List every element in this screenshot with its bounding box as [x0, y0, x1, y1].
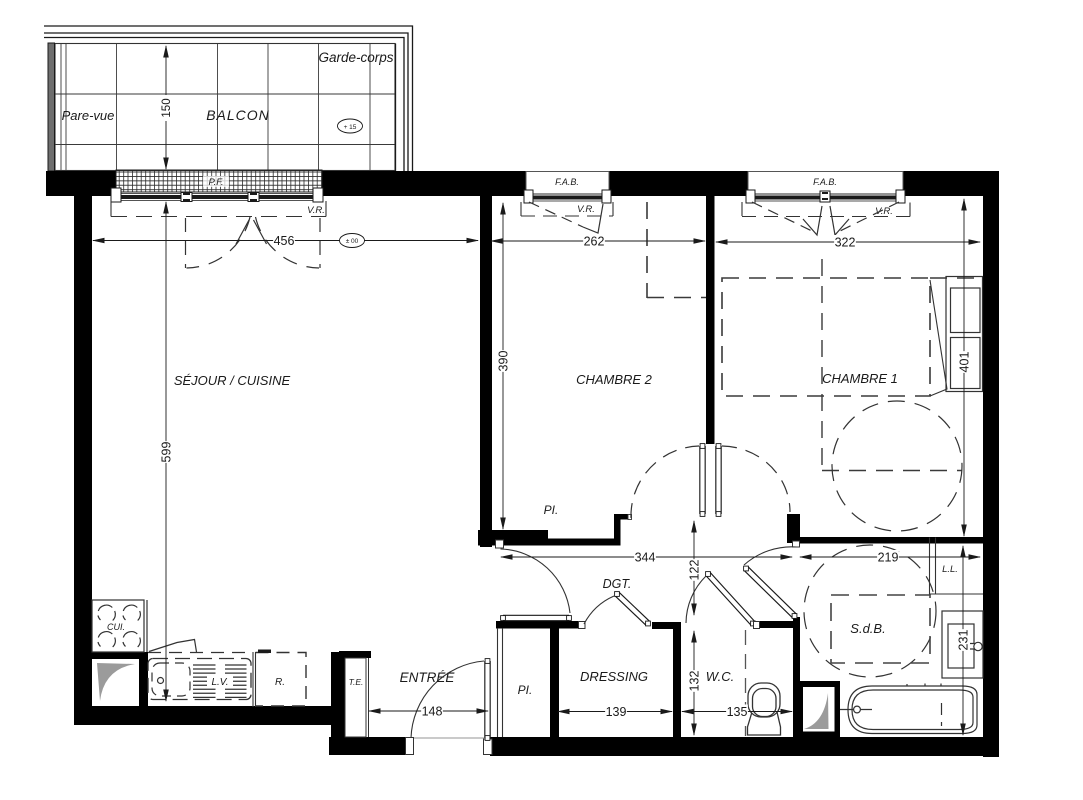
svg-text:PI.: PI. — [518, 683, 533, 697]
svg-text:122: 122 — [688, 560, 702, 581]
svg-text:262: 262 — [584, 235, 605, 249]
svg-text:344: 344 — [635, 551, 656, 565]
svg-text:PI.: PI. — [544, 503, 559, 517]
svg-text:± 00: ± 00 — [346, 238, 359, 245]
svg-text:231: 231 — [957, 630, 971, 651]
svg-text:135: 135 — [727, 705, 748, 719]
svg-text:Pare-vue: Pare-vue — [62, 108, 115, 123]
svg-text:T.E.: T.E. — [349, 677, 364, 687]
svg-text:R.: R. — [275, 677, 285, 688]
svg-text:CHAMBRE 2: CHAMBRE 2 — [576, 372, 653, 387]
svg-text:456: 456 — [274, 234, 295, 248]
svg-text:150: 150 — [161, 98, 173, 117]
svg-text:Garde-corps: Garde-corps — [318, 50, 393, 65]
svg-text:+ 15: + 15 — [344, 124, 357, 131]
svg-text:L.V.: L.V. — [211, 677, 228, 688]
svg-text:599: 599 — [160, 442, 174, 463]
svg-text:SÉJOUR / CUISINE: SÉJOUR / CUISINE — [174, 373, 291, 388]
svg-text:S.d.B.: S.d.B. — [850, 621, 885, 636]
svg-text:148: 148 — [422, 705, 443, 719]
svg-text:F.A.B.: F.A.B. — [813, 177, 837, 187]
svg-text:401: 401 — [958, 352, 972, 373]
svg-text:DRESSING: DRESSING — [580, 669, 648, 684]
svg-text:CUI.: CUI. — [107, 622, 125, 632]
svg-text:V.R.: V.R. — [307, 205, 325, 216]
svg-text:DGT.: DGT. — [603, 577, 632, 591]
svg-text:F.A.B.: F.A.B. — [555, 177, 579, 187]
svg-text:322: 322 — [835, 236, 856, 250]
svg-text:V.R.: V.R. — [577, 204, 595, 215]
svg-text:390: 390 — [497, 351, 511, 372]
svg-text:L.L.: L.L. — [942, 564, 958, 575]
svg-text:W.C.: W.C. — [706, 669, 734, 684]
svg-text:P.F.: P.F. — [209, 177, 224, 188]
svg-text:139: 139 — [606, 705, 627, 719]
svg-text:BALCON: BALCON — [206, 107, 270, 123]
svg-text:132: 132 — [688, 671, 702, 692]
svg-text:V.R.: V.R. — [875, 206, 893, 217]
svg-text:CHAMBRE 1: CHAMBRE 1 — [822, 371, 898, 386]
svg-text:219: 219 — [878, 551, 899, 565]
svg-text:ENTRÉE: ENTRÉE — [400, 670, 456, 685]
